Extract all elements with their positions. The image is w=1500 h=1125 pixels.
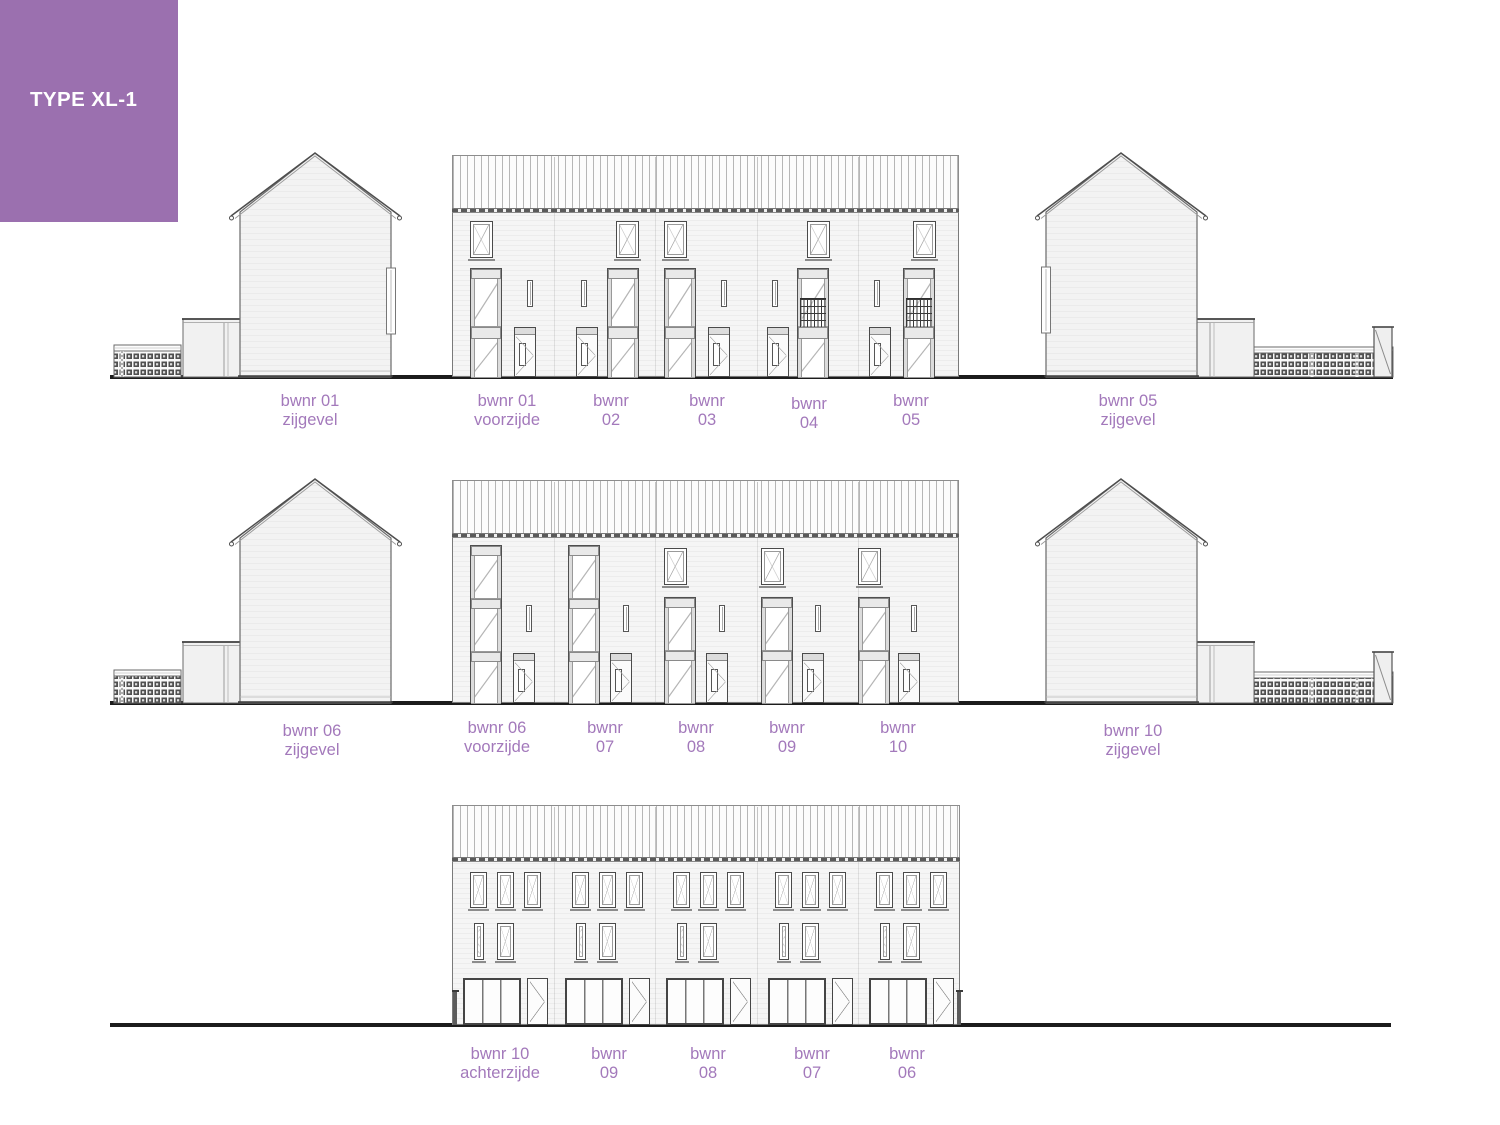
- stack-window: [859, 608, 889, 651]
- entry-door: [802, 653, 824, 703]
- elevation-label-line: bwnr: [769, 719, 805, 738]
- window: [903, 872, 920, 908]
- elevation-label: bwnr09: [591, 1045, 627, 1082]
- stack-band: [569, 546, 599, 556]
- patio-doors: [666, 978, 724, 1025]
- window: [930, 872, 947, 908]
- unit-divider: [554, 538, 555, 702]
- stack-window: [569, 609, 599, 652]
- rear-door: [832, 978, 853, 1025]
- entry-door: [706, 653, 728, 703]
- stack-window: [665, 661, 695, 704]
- window: [497, 923, 514, 960]
- elevation-label-line: bwnr: [593, 392, 629, 411]
- elevation-label: bwnr10: [880, 719, 916, 756]
- window: [497, 872, 514, 908]
- stack-band: [665, 651, 695, 661]
- entry-door: [708, 327, 730, 377]
- type-title: TYPE XL-1: [30, 88, 178, 112]
- fence-post: [453, 992, 457, 1025]
- rear-door: [933, 978, 954, 1025]
- elevation-label-line: 03: [689, 411, 725, 430]
- window: [700, 872, 717, 908]
- voorzijde-01-05-roofband: [452, 155, 959, 208]
- patio-doors: [565, 978, 623, 1025]
- window: [664, 221, 687, 258]
- bwnr06-zijgevel-drawing: [103, 466, 405, 708]
- elevation-label: bwnr07: [587, 719, 623, 756]
- unit-divider: [858, 862, 859, 1024]
- slit-window: [719, 605, 725, 632]
- window-stack: [470, 545, 502, 703]
- unit-divider: [655, 482, 656, 533]
- elevation-label-line: bwnr 10: [1104, 722, 1163, 741]
- window: [727, 872, 744, 908]
- window-stack: [568, 545, 600, 703]
- stack-window: [608, 279, 638, 327]
- window-stack: [607, 268, 639, 377]
- bwnr01-zijgevel-drawing: [103, 140, 405, 382]
- rear-door: [629, 978, 650, 1025]
- balcony-railing: [906, 298, 932, 330]
- unit-divider: [554, 862, 555, 1024]
- window: [700, 923, 717, 960]
- elevation-label-line: 06: [889, 1064, 925, 1083]
- window: [576, 923, 586, 960]
- stack-band: [471, 546, 501, 556]
- side-elevation-bwnr06-zijgevel: [103, 466, 405, 708]
- stack-band: [471, 652, 501, 662]
- elevation-label-line: bwnr 01: [281, 392, 340, 411]
- stack-window: [904, 339, 934, 378]
- unit-divider: [655, 538, 656, 702]
- unit-divider: [757, 862, 758, 1024]
- elevation-label-line: 09: [591, 1064, 627, 1083]
- slit-window: [623, 605, 629, 632]
- elevation-label-line: 08: [678, 738, 714, 757]
- unit-divider: [757, 482, 758, 533]
- unit-divider: [655, 807, 656, 857]
- window: [677, 923, 687, 960]
- stack-band: [569, 599, 599, 609]
- window-stack: [664, 597, 696, 703]
- elevation-label: bwnr 05zijgevel: [1099, 392, 1158, 429]
- window: [626, 872, 643, 908]
- slit-window: [815, 605, 821, 632]
- elevation-label-line: 05: [893, 411, 929, 430]
- elevation-label-line: zijgevel: [283, 741, 342, 760]
- stack-band: [798, 327, 828, 339]
- stack-window: [665, 279, 695, 327]
- stack-window: [608, 339, 638, 378]
- elevation-label-line: bwnr 10: [460, 1045, 540, 1064]
- slit-window: [581, 280, 587, 307]
- elevation-label: bwnr 01zijgevel: [281, 392, 340, 429]
- stack-window: [798, 339, 828, 378]
- elevation-label-line: bwnr 06: [283, 722, 342, 741]
- unit-divider: [757, 157, 758, 208]
- patio-doors: [869, 978, 927, 1025]
- window: [880, 923, 890, 960]
- unit-divider: [655, 157, 656, 208]
- elevation-label: bwnr 06voorzijde: [464, 719, 530, 756]
- stack-window: [471, 662, 501, 704]
- entry-door: [576, 327, 598, 377]
- stack-window: [569, 662, 599, 704]
- unit-divider: [858, 482, 859, 533]
- elevation-label-line: bwnr: [690, 1045, 726, 1064]
- elevation-label-line: zijgevel: [1104, 741, 1163, 760]
- window: [779, 923, 789, 960]
- stack-band: [608, 269, 638, 279]
- stack-band: [859, 598, 889, 608]
- unit-divider: [554, 482, 555, 533]
- stack-window: [471, 556, 501, 599]
- patio-doors: [463, 978, 521, 1025]
- elevation-sheet: TYPE XL-1: [0, 0, 1500, 1125]
- balcony-railing: [800, 298, 826, 330]
- window: [599, 872, 616, 908]
- window: [802, 872, 819, 908]
- stack-band: [471, 269, 501, 279]
- side-elevation-bwnr01-zijgevel: [103, 140, 405, 382]
- stack-window: [859, 661, 889, 704]
- elevation-label-line: 10: [880, 738, 916, 757]
- stack-window: [471, 609, 501, 652]
- elevation-label: bwnr 01voorzijde: [474, 392, 540, 429]
- window: [913, 221, 936, 258]
- elevation-label-line: voorzijde: [474, 411, 540, 430]
- elevation-label-line: 04: [791, 414, 827, 433]
- slit-window: [772, 280, 778, 307]
- stack-band: [762, 651, 792, 661]
- window: [470, 872, 487, 908]
- slit-window: [526, 605, 532, 632]
- stack-band: [471, 599, 501, 609]
- elevation-label-line: achterzijde: [460, 1064, 540, 1083]
- elevation-label-line: bwnr: [591, 1045, 627, 1064]
- window-stack: [761, 597, 793, 703]
- window-stack: [664, 268, 696, 377]
- window: [524, 872, 541, 908]
- elevation-label-line: zijgevel: [1099, 411, 1158, 430]
- rear-door: [527, 978, 548, 1025]
- stack-band: [665, 327, 695, 339]
- unit-divider: [655, 213, 656, 376]
- window: [876, 872, 893, 908]
- stack-window: [569, 556, 599, 599]
- stack-band: [569, 652, 599, 662]
- slit-window: [527, 280, 533, 307]
- stack-band: [762, 598, 792, 608]
- window: [761, 548, 784, 585]
- elevation-label-line: bwnr: [791, 395, 827, 414]
- entry-door: [767, 327, 789, 377]
- stack-band: [904, 327, 934, 339]
- window: [616, 221, 639, 258]
- unit-divider: [858, 807, 859, 857]
- elevation-label-line: 07: [794, 1064, 830, 1083]
- unit-divider: [554, 213, 555, 376]
- window: [802, 923, 819, 960]
- elevation-label-line: bwnr: [587, 719, 623, 738]
- unit-divider: [858, 213, 859, 376]
- elevation-label: bwnr08: [690, 1045, 726, 1082]
- stack-window: [665, 608, 695, 651]
- elevation-label: bwnr09: [769, 719, 805, 756]
- elevation-label-line: zijgevel: [281, 411, 340, 430]
- window: [572, 872, 589, 908]
- window-stack: [858, 597, 890, 703]
- window: [474, 923, 484, 960]
- window: [664, 548, 687, 585]
- elevation-label-line: 08: [690, 1064, 726, 1083]
- slit-window: [721, 280, 727, 307]
- elevation-label-line: bwnr: [893, 392, 929, 411]
- stack-band: [608, 327, 638, 339]
- entry-door: [610, 653, 632, 703]
- bwnr10-zijgevel-drawing: [1033, 466, 1400, 708]
- side-elevation-bwnr10-zijgevel: [1033, 466, 1400, 708]
- window: [858, 548, 881, 585]
- slit-window: [874, 280, 880, 307]
- bwnr05-zijgevel-drawing: [1033, 140, 1400, 382]
- stack-window: [471, 279, 501, 327]
- stack-band: [665, 598, 695, 608]
- stack-band: [859, 651, 889, 661]
- unit-divider: [858, 157, 859, 208]
- elevation-label-line: bwnr: [689, 392, 725, 411]
- elevation-label-line: bwnr 01: [474, 392, 540, 411]
- achterzijde-10-06-roofband: [452, 805, 960, 857]
- elevation-label-line: bwnr: [794, 1045, 830, 1064]
- unit-divider: [554, 807, 555, 857]
- unit-divider: [655, 862, 656, 1024]
- elevation-label-line: 09: [769, 738, 805, 757]
- elevation-label-line: 02: [593, 411, 629, 430]
- window: [829, 872, 846, 908]
- fence-post: [957, 992, 961, 1025]
- elevation-label: bwnr08: [678, 719, 714, 756]
- unit-divider: [757, 538, 758, 702]
- elevation-label-line: bwnr: [880, 719, 916, 738]
- slit-window: [911, 605, 917, 632]
- entry-door: [898, 653, 920, 703]
- elevation-label: bwnr05: [893, 392, 929, 429]
- elevation-label: bwnr06: [889, 1045, 925, 1082]
- elevation-label: bwnr 10zijgevel: [1104, 722, 1163, 759]
- stack-band: [665, 269, 695, 279]
- window: [673, 872, 690, 908]
- voorzijde-06-10-roofband: [452, 480, 959, 533]
- elevation-label-line: bwnr 06: [464, 719, 530, 738]
- stack-window: [665, 339, 695, 378]
- window: [775, 872, 792, 908]
- window-stack: [903, 268, 935, 377]
- elevation-label: bwnr04: [791, 395, 827, 432]
- window: [470, 221, 493, 258]
- stack-band: [904, 269, 934, 279]
- window: [807, 221, 830, 258]
- stack-band: [798, 269, 828, 279]
- stack-window: [762, 608, 792, 651]
- elevation-label-line: bwnr 05: [1099, 392, 1158, 411]
- entry-door: [513, 653, 535, 703]
- entry-door: [514, 327, 536, 377]
- elevation-label-line: bwnr: [678, 719, 714, 738]
- elevation-label: bwnr 10achterzijde: [460, 1045, 540, 1082]
- elevation-label: bwnr 06zijgevel: [283, 722, 342, 759]
- side-elevation-bwnr05-zijgevel: [1033, 140, 1400, 382]
- stack-window: [762, 661, 792, 704]
- unit-divider: [757, 807, 758, 857]
- patio-doors: [768, 978, 826, 1025]
- stack-band: [471, 327, 501, 339]
- stack-window: [471, 339, 501, 378]
- window: [903, 923, 920, 960]
- elevation-label-line: 07: [587, 738, 623, 757]
- rear-door: [730, 978, 751, 1025]
- window-stack: [797, 268, 829, 377]
- elevation-label-line: voorzijde: [464, 738, 530, 757]
- entry-door: [869, 327, 891, 377]
- elevation-label: bwnr02: [593, 392, 629, 429]
- window-stack: [470, 268, 502, 377]
- elevation-label: bwnr07: [794, 1045, 830, 1082]
- elevation-label-line: bwnr: [889, 1045, 925, 1064]
- elevation-label: bwnr03: [689, 392, 725, 429]
- unit-divider: [757, 213, 758, 376]
- unit-divider: [554, 157, 555, 208]
- window: [599, 923, 616, 960]
